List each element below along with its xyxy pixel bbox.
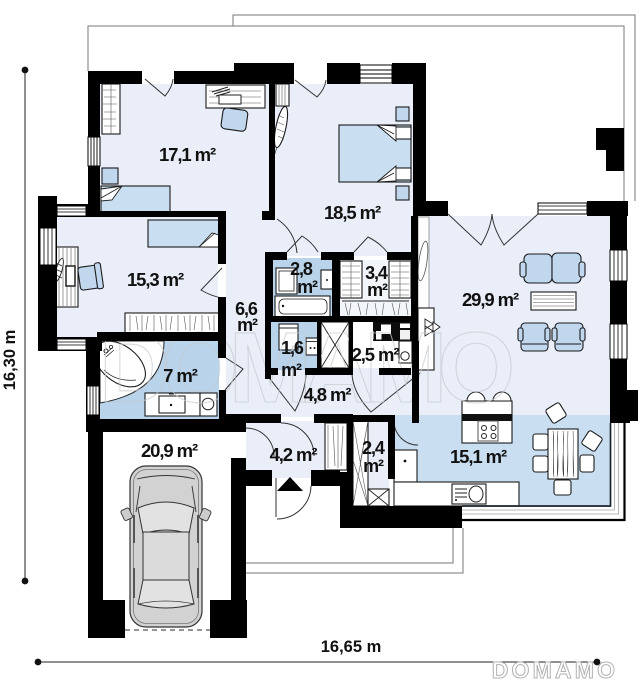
- svg-text:m²: m²: [237, 315, 258, 335]
- svg-text:20,9 m²: 20,9 m²: [141, 440, 198, 461]
- svg-text:18,5 m²: 18,5 m²: [324, 202, 381, 223]
- svg-text:16,30 m: 16,30 m: [1, 330, 19, 391]
- svg-text:2,8: 2,8: [290, 259, 313, 279]
- svg-text:4,8 m²: 4,8 m²: [304, 384, 352, 405]
- svg-text:7 m²: 7 m²: [163, 365, 198, 386]
- svg-text:1,6: 1,6: [281, 338, 304, 358]
- svg-text:29,9 m²: 29,9 m²: [462, 289, 519, 310]
- svg-text:m²: m²: [297, 277, 318, 297]
- svg-text:16,65 m: 16,65 m: [321, 638, 382, 656]
- svg-text:15,1 m²: 15,1 m²: [450, 446, 507, 467]
- svg-text:DOMAMO: DOMAMO: [492, 657, 619, 683]
- svg-text:m²: m²: [363, 456, 384, 476]
- svg-text:m²: m²: [281, 360, 302, 380]
- svg-text:4,2 m²: 4,2 m²: [270, 444, 318, 465]
- svg-text:2,4: 2,4: [362, 438, 385, 458]
- svg-text:2,5 m²: 2,5 m²: [352, 344, 400, 365]
- svg-text:15,3 m²: 15,3 m²: [127, 269, 184, 290]
- svg-text:17,1 m²: 17,1 m²: [159, 144, 216, 165]
- svg-text:m²: m²: [367, 280, 388, 300]
